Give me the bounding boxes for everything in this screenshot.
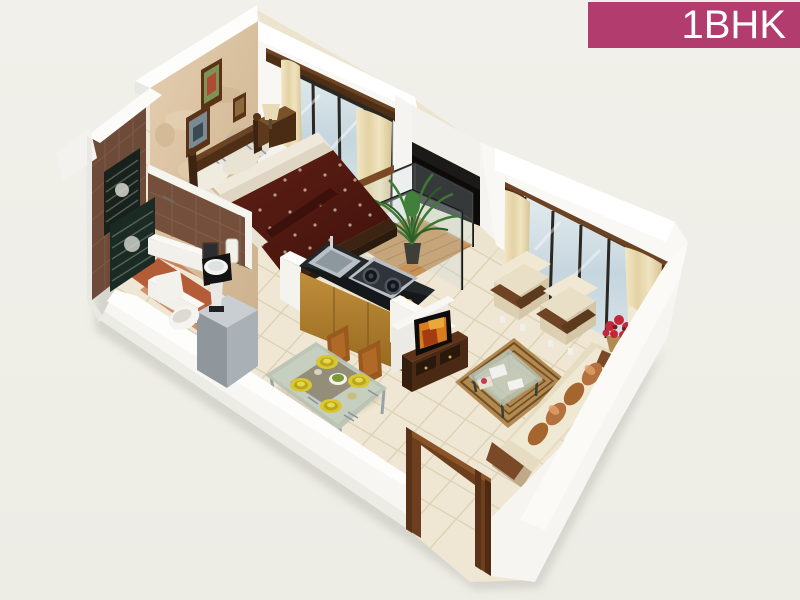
svg-text:1BHK: 1BHK [682, 3, 787, 47]
